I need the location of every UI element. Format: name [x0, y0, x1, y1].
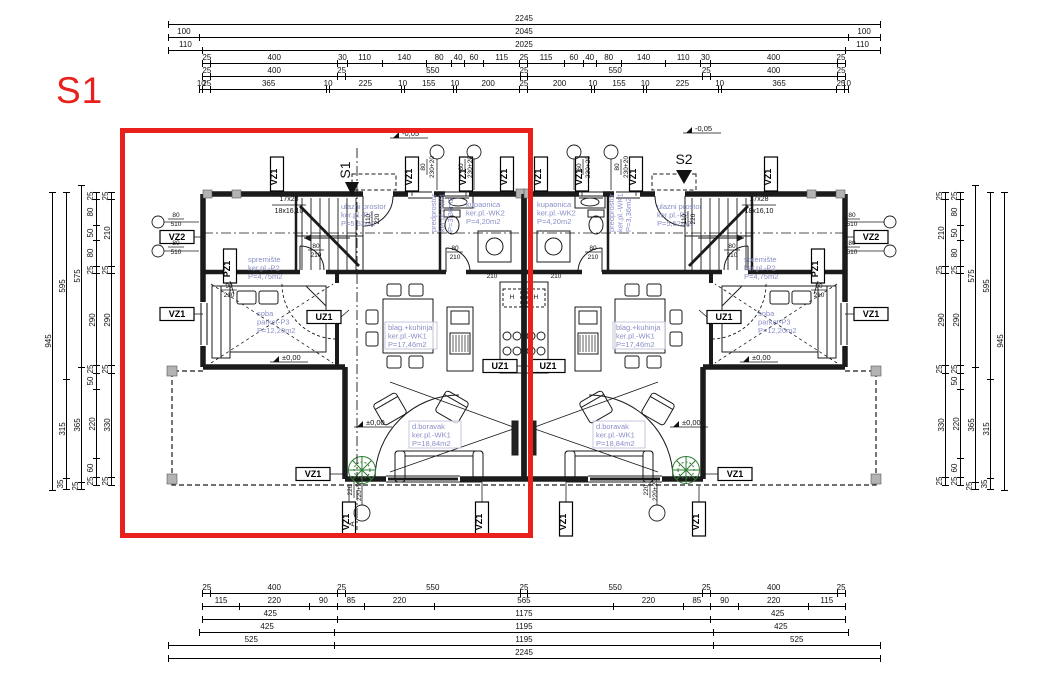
dim-value: 565 — [517, 597, 530, 605]
dim-value: 220 — [268, 597, 281, 605]
plan-text: 210 — [814, 292, 825, 299]
plan-text: 230+20 — [623, 156, 630, 178]
plan-text: VZ1 — [305, 469, 322, 479]
dim-value: 60 — [950, 463, 959, 472]
dim-value: 330 — [103, 419, 112, 432]
uz1-tag: UZ1 — [707, 311, 741, 324]
window-marker-circle — [884, 245, 896, 257]
dim-value: 525 — [790, 636, 803, 644]
dim-chain-col: 25210252902533025 — [934, 192, 946, 485]
opening-dim-door80: 80210 — [724, 243, 740, 259]
plan-text: VZ1 — [727, 469, 744, 479]
plan-text: UZ1 — [315, 312, 332, 322]
dim-value: 200 — [553, 80, 566, 88]
room-label-kupaonica: kupaonicaker.pl.-WK2P=4,20m2 — [466, 200, 505, 226]
plan-text: 210 — [224, 292, 235, 299]
dim-chain-col: 59531535 — [55, 192, 67, 490]
dim-value: 425 — [260, 623, 273, 631]
plan-text: VZ1 — [763, 169, 773, 186]
plan-text: 230+20 — [585, 156, 592, 178]
dim-value: 365 — [772, 80, 785, 88]
dim-chain-row: 4251175425 — [203, 608, 845, 620]
plan-text: P=17,46m2 — [388, 340, 427, 349]
dim-chain-row: 1102025110 — [168, 39, 880, 51]
plan-text: 80 — [848, 240, 856, 247]
plan-text: VZ1 — [863, 309, 880, 319]
dim-chain-row: 2540030110140804060115251156040801401103… — [203, 52, 845, 64]
pz1-tag: PZ1 — [222, 249, 237, 283]
plan-text: 220 — [690, 213, 697, 224]
room-label-blag: blag.+kuhinjaker.pl.-WK1P=17,46m2 — [385, 322, 437, 349]
dim-chain-col: 25210252902533025 — [100, 192, 112, 485]
plan-text: PZ1 — [222, 261, 232, 278]
plan-text: H — [534, 294, 539, 301]
dim-value: 25 — [101, 477, 110, 486]
dim-value: 290 — [952, 313, 961, 326]
dim-chain-col: 945 — [993, 192, 1005, 490]
dim-chain-row: 1025365102251015510200252001015510225103… — [200, 78, 849, 90]
apartment-s1-title: S1 — [56, 70, 103, 112]
plan-text: VZ1 — [691, 514, 701, 531]
dim-value: 10 — [842, 80, 851, 88]
vz1-tag: VZ1 — [533, 157, 548, 191]
dim-chain-row: 2245 — [168, 13, 880, 25]
dim-value: 50 — [86, 229, 95, 238]
plan-text: 80 — [614, 163, 621, 171]
plan-text: 110 — [681, 213, 688, 224]
dim-value: 60 — [569, 54, 578, 62]
dim-value: 40 — [454, 54, 463, 62]
dim-value: 290 — [88, 313, 97, 326]
plan-text: UZ1 — [539, 361, 556, 371]
entrance-marker-s2: S2 — [675, 151, 692, 184]
dim-value: 200 — [482, 80, 495, 88]
dim-value: 400 — [767, 584, 780, 592]
dim-value: 315 — [58, 423, 67, 436]
dim-value: 80 — [604, 54, 613, 62]
plan-text: ±0,00 — [366, 418, 385, 427]
level-marker: -0,05 — [683, 124, 721, 133]
dim-value: 25 — [837, 584, 846, 592]
plan-text: ±0,00 — [282, 353, 301, 362]
dim-value: 365 — [967, 418, 976, 431]
plan-text: P=3,36m2 — [446, 198, 455, 232]
plan-text: 80 — [848, 212, 856, 219]
vz1-tag: VZ1 — [628, 157, 643, 191]
vz2-tag: VZ2 — [854, 231, 888, 244]
dim-value: 220 — [952, 417, 961, 430]
dim-value: 365 — [262, 80, 275, 88]
plan-text: 210 — [311, 252, 322, 259]
dim-value: 1195 — [515, 636, 532, 644]
dim-value: 2025 — [515, 41, 533, 49]
dim-value: 225 — [676, 80, 689, 88]
plan-text: VZ1 — [533, 169, 543, 186]
plan-text: P=12,20m2 — [758, 326, 797, 335]
level-marker: -0,05 — [390, 129, 428, 138]
dim-value: 115 — [495, 54, 508, 62]
room-label-blag: blag.+kuhinjaker.pl.-WK1P=17,46m2 — [613, 322, 665, 349]
plan-text: 210 — [727, 252, 738, 259]
dim-value: 140 — [398, 54, 411, 62]
dim-value: 2045 — [515, 28, 533, 36]
tag-leader — [699, 310, 707, 317]
dim-chain-row: 2245 — [168, 647, 880, 659]
dim-value: 1195 — [515, 623, 532, 631]
dim-value: 575 — [967, 270, 976, 283]
plan-text: P=4,20m2 — [466, 217, 500, 226]
plan-text: VZ1 — [269, 169, 279, 186]
room-label-kupaonica: kupaonicaker.pl.-WK2P=4,20m2 — [537, 200, 576, 226]
plan-text: 60 — [458, 163, 465, 171]
uz1-tag: UZ1 — [307, 311, 341, 324]
plan-text: 80 — [172, 240, 180, 247]
plan-text: 18x16,10 — [275, 208, 304, 215]
dim-value: 220 — [642, 597, 655, 605]
vz1-tag: VZ1 — [474, 502, 489, 536]
vz1-tag: VZ1 — [296, 468, 330, 481]
dim-value: 100 — [177, 28, 190, 36]
dim-value: 80 — [86, 208, 95, 217]
plan-text: 90 — [815, 283, 823, 290]
dim-value: 210 — [103, 226, 112, 239]
dim-value: 595 — [58, 279, 67, 292]
floor-plan-sheet: S1 2245100204510011020251102540030110140… — [0, 0, 1057, 680]
dim-value: 1175 — [515, 610, 532, 618]
dim-value: 100 — [857, 28, 870, 36]
window-marker-circle — [467, 145, 481, 159]
dim-value: 50 — [950, 377, 959, 386]
dim-value: 365 — [73, 418, 82, 431]
dim-value: 595 — [982, 279, 991, 292]
plan-text: 210 — [450, 254, 461, 261]
vz1-tag: VZ1 — [341, 502, 356, 536]
plan-text: P=17,46m2 — [616, 340, 655, 349]
plan-text: S1 — [337, 161, 353, 178]
vz1-tag: VZ1 — [499, 157, 514, 191]
dim-value: 550 — [426, 584, 439, 592]
vz1-tag: VZ1 — [269, 157, 284, 191]
dim-value: 25 — [950, 477, 959, 486]
plan-text: PZ1 — [810, 261, 820, 278]
dim-chain-row: 4251195425 — [200, 621, 849, 633]
entrance-marker-s1: S1 — [337, 161, 359, 196]
plan-text: 18x16,10 — [745, 208, 774, 215]
window-marker-circle — [354, 505, 370, 521]
dim-value: 110 — [179, 41, 192, 49]
floor-plan-drawing: VZ1VZ1VZ1VZ1VZ1VZ1VZ1VZ1PZ1PZ1VZ1VZ1VZ1V… — [0, 0, 1057, 680]
dim-chain-col: 57536525 — [964, 186, 976, 490]
plan-text: 220+20 — [652, 479, 659, 501]
plan-text: 80 — [728, 243, 736, 250]
plan-text: P=4,20m2 — [537, 217, 571, 226]
plan-text: VZ1 — [558, 514, 568, 531]
dim-value: 25 — [71, 482, 80, 491]
plan-text: 220 — [347, 484, 354, 495]
dim-value: 550 — [608, 584, 621, 592]
dim-chain-col: 258050802529025502206025 — [949, 192, 961, 485]
dim-value: 110 — [677, 54, 690, 62]
section-marker-a: A — [347, 521, 356, 526]
dim-value: 155 — [612, 80, 625, 88]
dim-value: 25 — [86, 477, 95, 486]
plan-text: 60 — [576, 163, 583, 171]
plan-text: VZ1 — [499, 169, 509, 186]
plan-text: 510 — [171, 249, 182, 256]
plan-text: VZ1 — [169, 309, 186, 319]
dim-value: 115 — [820, 597, 833, 605]
plan-text: ±0,00 — [752, 353, 771, 362]
window-marker-circle — [649, 505, 665, 521]
dim-value: 225 — [359, 80, 372, 88]
plan-text: 80 — [451, 245, 459, 252]
dim-value: 80 — [435, 54, 444, 62]
dim-value: 945 — [44, 334, 53, 347]
dim-value: 400 — [268, 67, 281, 75]
dim-value: 155 — [422, 80, 435, 88]
vz1-tag: VZ1 — [854, 308, 888, 321]
room-label-predprostor: predprostorker.pl.-WK1P=3,36m2 — [429, 193, 455, 232]
dim-value: 210 — [937, 226, 946, 239]
dim-chain-row: 1002045100 — [168, 26, 880, 38]
opening-dim-door90: 90210 — [811, 283, 827, 299]
uz1-tag: UZ1 — [531, 360, 565, 373]
dim-value: 35 — [56, 480, 65, 489]
dim-value: 425 — [774, 623, 787, 631]
plan-text: S2 — [675, 151, 692, 167]
vz1-tag: VZ1 — [160, 308, 194, 321]
plan-text: ±0,00 — [682, 418, 701, 427]
dim-chain-col: 59531535 — [979, 192, 991, 490]
dim-value: 85 — [347, 597, 356, 605]
dim-value: 115 — [540, 54, 553, 62]
dim-value: 110 — [358, 54, 371, 62]
opening-dim-door90: 90210 — [221, 283, 237, 299]
plan-text: P=12,20m2 — [257, 326, 296, 335]
dim-value: 400 — [268, 584, 281, 592]
plan-text: 90 — [225, 283, 233, 290]
uz1-tag: UZ1 — [483, 360, 517, 373]
pz1-tag: PZ1 — [810, 249, 825, 283]
window-marker-circle — [152, 216, 164, 228]
dim-value: 50 — [950, 229, 959, 238]
plan-text: UZ1 — [491, 361, 508, 371]
dim-chain-row: 2540025550255502540025 — [203, 582, 845, 594]
plan-text: 80 — [312, 243, 320, 250]
plan-text: VZ1 — [404, 169, 414, 186]
dim-value: 110 — [856, 41, 869, 49]
dim-value: 25 — [935, 477, 944, 486]
dim-value: 50 — [86, 377, 95, 386]
plan-text: VZ1 — [474, 514, 484, 531]
dim-value: 80 — [86, 249, 95, 258]
plan-text: P=3,36m2 — [624, 198, 633, 232]
dim-value: 25 — [965, 482, 974, 491]
dim-value: 220 — [767, 597, 780, 605]
plan-text: P=4,75m2 — [744, 272, 778, 281]
plan-text: VZ2 — [863, 232, 880, 242]
dim-value: 400 — [268, 54, 281, 62]
dim-value: 550 — [426, 67, 439, 75]
dim-value: 550 — [608, 67, 621, 75]
opening-dim-win80: 80230+20 — [614, 156, 630, 178]
plan-text: P=18,84m2 — [412, 439, 451, 448]
room-label-predprostor: predprostorker.pl.-WK1P=3,36m2 — [607, 193, 633, 232]
dim-value: 40 — [585, 54, 594, 62]
dim-value: 85 — [692, 597, 701, 605]
plan-text: 17x28 — [749, 196, 768, 203]
dim-value: 35 — [980, 480, 989, 489]
dim-value: 80 — [950, 208, 959, 217]
plan-text: 80 — [420, 163, 427, 171]
plan-text: 220 — [643, 484, 650, 495]
vz1-tag: VZ1 — [691, 502, 706, 536]
dim-chain-col: 945 — [41, 192, 53, 490]
dim-value: 2245 — [515, 15, 533, 23]
dim-value: 90 — [720, 597, 729, 605]
dim-value: 25 — [837, 54, 846, 62]
dim-value: 60 — [470, 54, 479, 62]
dim-value: 140 — [637, 54, 650, 62]
dim-chain-row: 11522090852205652208590220115 — [203, 595, 845, 607]
window-marker-circle — [567, 145, 581, 159]
plan-text: 210 — [588, 254, 599, 261]
dim-value: 80 — [950, 249, 959, 258]
opening-dim-win80: 80230+20 — [420, 156, 436, 178]
dim-value: 575 — [73, 270, 82, 283]
dim-value: 400 — [767, 54, 780, 62]
dim-value: 290 — [937, 313, 946, 326]
dim-chain-row: 5251195525 — [168, 634, 880, 646]
dim-value: 425 — [771, 610, 784, 618]
dim-value: 30 — [338, 54, 347, 62]
room-label-soba: sobaparket-P3P=12,20m2 — [758, 309, 797, 335]
dim-value: 425 — [264, 610, 277, 618]
plan-text: -0,05 — [695, 124, 712, 133]
plan-text: 17x28 — [279, 196, 298, 203]
dim-value: 30 — [701, 54, 710, 62]
room-label-dnevni: d.boravakker.pl.-WK1P=18,84m2 — [409, 421, 461, 448]
dim-value: 220 — [88, 417, 97, 430]
vz1-tag: VZ1 — [763, 157, 778, 191]
window-marker-circle — [604, 145, 618, 159]
room-label-dnevni: d.boravakker.pl.-WK1P=18,84m2 — [593, 421, 645, 448]
dim-value: 290 — [103, 313, 112, 326]
vz1-tag: VZ1 — [404, 157, 419, 191]
room-label-spremiste: spremišteker.pl.-P2P=4,75m2 — [248, 255, 282, 281]
dim-value: 525 — [245, 636, 258, 644]
plan-text: 220 — [374, 213, 381, 224]
level-marker: ±0,00 — [270, 353, 308, 362]
plan-text: P=4,75m2 — [248, 272, 282, 281]
plan-text: 210 — [551, 273, 562, 280]
plan-text: 210 — [487, 273, 498, 280]
dim-value: 315 — [982, 423, 991, 436]
plan-text: 80 — [589, 245, 597, 252]
dim-value: 25 — [837, 67, 846, 75]
dim-value: 400 — [767, 67, 780, 75]
opening-dim-door80: 80210 — [308, 243, 324, 259]
dim-value: 60 — [86, 463, 95, 472]
plan-text: 110 — [365, 213, 372, 224]
opening-dim-flue: 80510 — [168, 212, 184, 228]
plan-text: P=18,84m2 — [596, 439, 635, 448]
window-marker-circle — [430, 145, 444, 159]
dim-value: 90 — [319, 597, 328, 605]
dim-chain-col: 258050802529025502206025 — [85, 192, 97, 485]
plan-text: H — [510, 294, 515, 301]
window-marker-circle — [152, 245, 164, 257]
room-label-spremiste: spremišteker.pl.-P2P=4,75m2 — [744, 255, 778, 281]
plan-text: UZ1 — [715, 312, 732, 322]
plan-text: -0,05 — [402, 129, 419, 138]
plan-text: A — [347, 521, 356, 526]
tag-leader — [341, 310, 349, 317]
vz1-tag: VZ1 — [718, 468, 752, 481]
level-marker: ±0,00 — [740, 353, 778, 362]
plan-text: 510 — [847, 249, 858, 256]
dim-value: 115 — [215, 597, 228, 605]
vz1-tag: VZ1 — [558, 502, 573, 536]
dim-chain-col: 57536525 — [70, 186, 82, 490]
level-marker: ±0,00 — [354, 418, 392, 427]
plan-text: 80 — [172, 212, 180, 219]
dim-chain-row: 2540025550255502540025 — [203, 65, 845, 77]
dim-value: 330 — [937, 419, 946, 432]
dim-value: 945 — [996, 334, 1005, 347]
window-marker-circle — [884, 216, 896, 228]
dim-value: 2245 — [515, 649, 533, 657]
dim-value: 220 — [393, 597, 406, 605]
